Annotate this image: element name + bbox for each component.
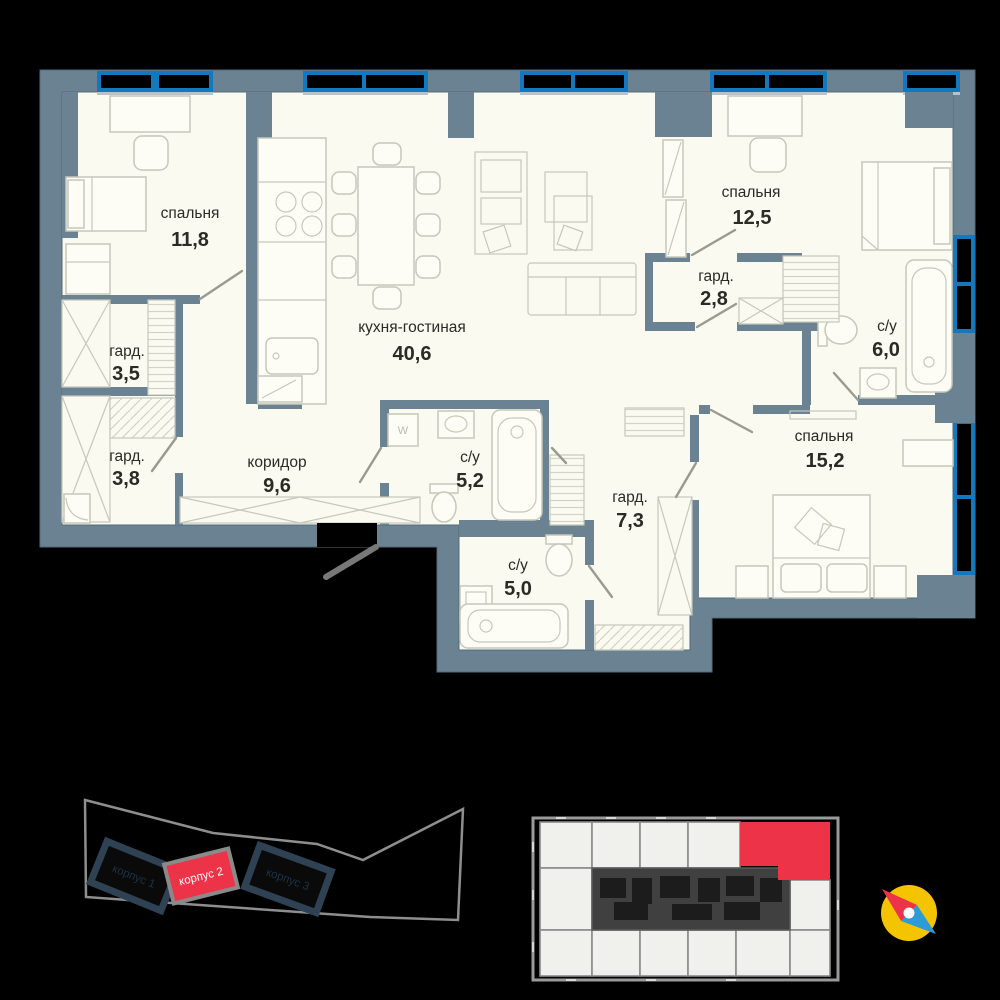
washer-label: W (398, 425, 409, 437)
label-wardrobe-3-5: гард.3,5 (109, 343, 145, 385)
svg-text:гард.: гард. (612, 489, 648, 506)
compass-icon (881, 885, 937, 941)
svg-text:2,8: 2,8 (700, 288, 728, 310)
svg-text:гард.: гард. (698, 268, 734, 285)
svg-text:5,2: 5,2 (456, 470, 484, 492)
toilet-icon (546, 535, 572, 576)
svg-text:6,0: 6,0 (872, 339, 900, 361)
entrance (317, 523, 377, 577)
svg-text:9,6: 9,6 (263, 475, 291, 497)
floor-plan-svg: W (0, 0, 1000, 1000)
label-bathroom-6-0: с/у6,0 (872, 318, 900, 361)
building-korpus-2-highlighted[interactable]: корпус 2 (164, 849, 238, 904)
svg-text:кухня-гостиная: кухня-гостиная (358, 319, 466, 336)
label-wardrobe-3-8: гард.3,8 (109, 448, 145, 490)
sink-icon (438, 411, 474, 438)
svg-text:3,8: 3,8 (112, 468, 140, 490)
window (953, 420, 975, 575)
window (303, 71, 428, 95)
svg-text:с/у: с/у (460, 449, 480, 466)
apartment-plan: W (40, 70, 975, 672)
svg-text:спальня: спальня (161, 205, 220, 222)
svg-text:с/у: с/у (877, 318, 897, 335)
svg-text:коридор: коридор (247, 454, 306, 471)
label-bathroom-5-0: с/у5,0 (504, 557, 532, 600)
kitchen-sink-icon (266, 338, 318, 374)
kitchen-counter (258, 138, 326, 404)
svg-text:12,5: 12,5 (733, 207, 772, 229)
svg-text:гард.: гард. (109, 343, 145, 360)
svg-text:3,5: 3,5 (112, 363, 140, 385)
svg-text:11,8: 11,8 (171, 229, 209, 251)
label-wardrobe-7-3: гард.7,3 (612, 489, 648, 532)
svg-text:гард.: гард. (109, 448, 145, 465)
sink-icon (860, 368, 896, 398)
svg-text:спальня: спальня (795, 428, 854, 445)
key-plan-core (592, 868, 790, 930)
entrance-door (326, 547, 376, 577)
building-korpus-3[interactable]: корпус 3 (245, 845, 331, 912)
svg-text:15,2: 15,2 (806, 450, 845, 472)
window (520, 71, 628, 95)
svg-text:5,0: 5,0 (504, 578, 532, 600)
washer-icon: W (388, 414, 418, 446)
label-bathroom-5-2: с/у5,2 (456, 449, 484, 492)
toilet-icon (430, 484, 458, 522)
building-korpus-1[interactable]: корпус 1 (91, 841, 178, 910)
page: W (0, 0, 1000, 1000)
window (97, 71, 213, 95)
svg-text:7,3: 7,3 (616, 510, 644, 532)
svg-text:спальня: спальня (722, 184, 781, 201)
window (953, 235, 975, 333)
window (903, 71, 960, 95)
floor-key-plan (533, 818, 838, 980)
site-plan: корпус 1 корпус 2 корпус 3 (85, 800, 463, 920)
svg-text:40,6: 40,6 (393, 343, 432, 365)
window (710, 71, 827, 95)
svg-text:с/у: с/у (508, 557, 528, 574)
